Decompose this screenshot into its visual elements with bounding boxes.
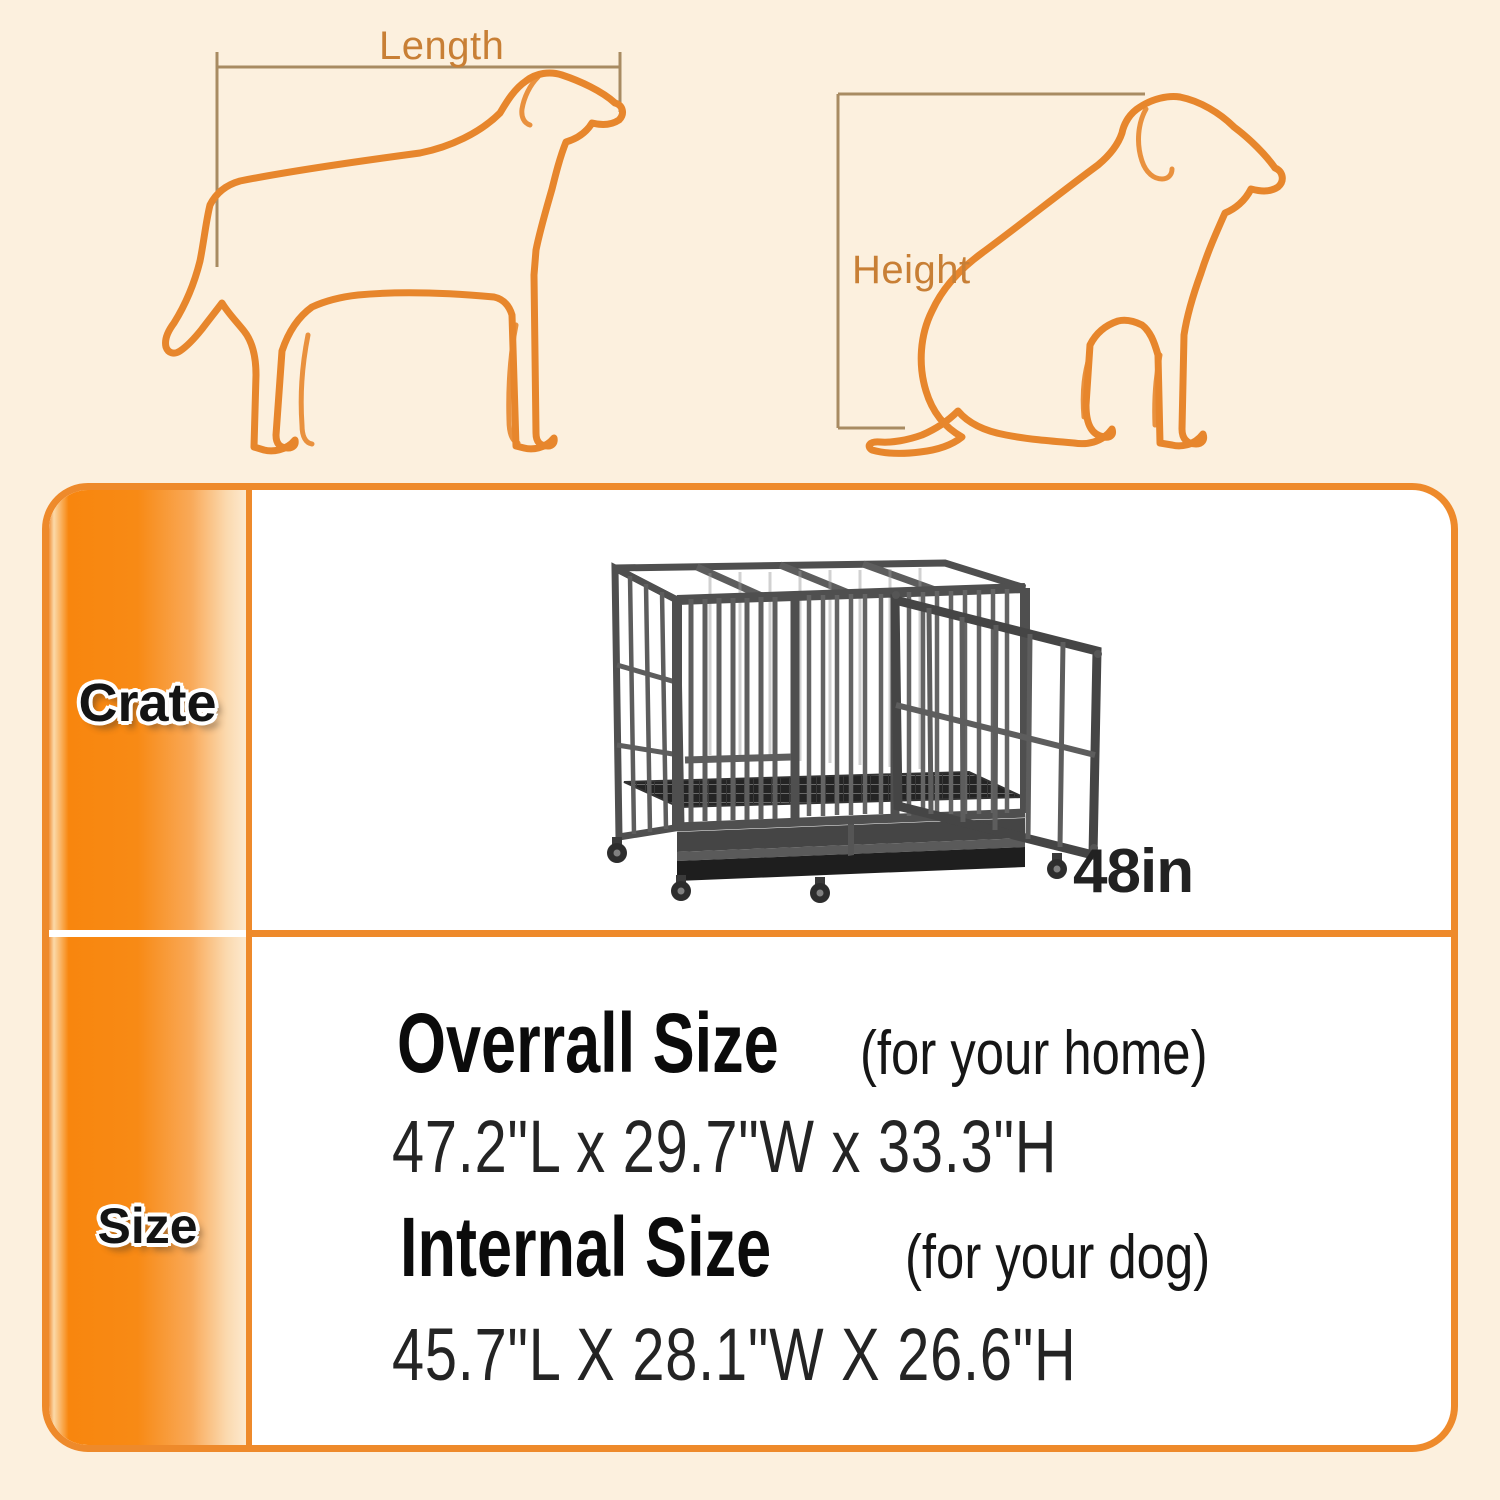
crate-size-callout: 48in [1073, 836, 1193, 907]
row-header-crate: Crate [49, 672, 246, 734]
crate-3d-illustration [605, 555, 1105, 915]
row-divider [252, 930, 1451, 937]
internal-size-dimensions: 45.7"L X 28.1"W X 26.6"H [392, 1312, 1076, 1397]
overall-size-title: Overrall Size [397, 995, 779, 1092]
standing-dog-outline [140, 25, 640, 465]
sitting-dog-outline [780, 25, 1300, 465]
length-label: Length [379, 24, 504, 69]
spec-table-sidebar [49, 490, 252, 1445]
height-label: Height [852, 248, 971, 293]
spec-table-panel: Crate Size [42, 483, 1458, 1452]
internal-size-note: (for your dog) [905, 1222, 1210, 1293]
row-header-size: Size [49, 1197, 246, 1255]
standing-dog-icon [165, 73, 622, 451]
measure-guide-section: Length Height [0, 0, 1500, 483]
overall-size-dimensions: 47.2"L x 29.7"W x 33.3"H [392, 1104, 1057, 1189]
sidebar-row-divider [49, 930, 246, 937]
overall-size-note: (for your home) [860, 1018, 1208, 1089]
internal-size-title: Internal Size [400, 1199, 771, 1296]
